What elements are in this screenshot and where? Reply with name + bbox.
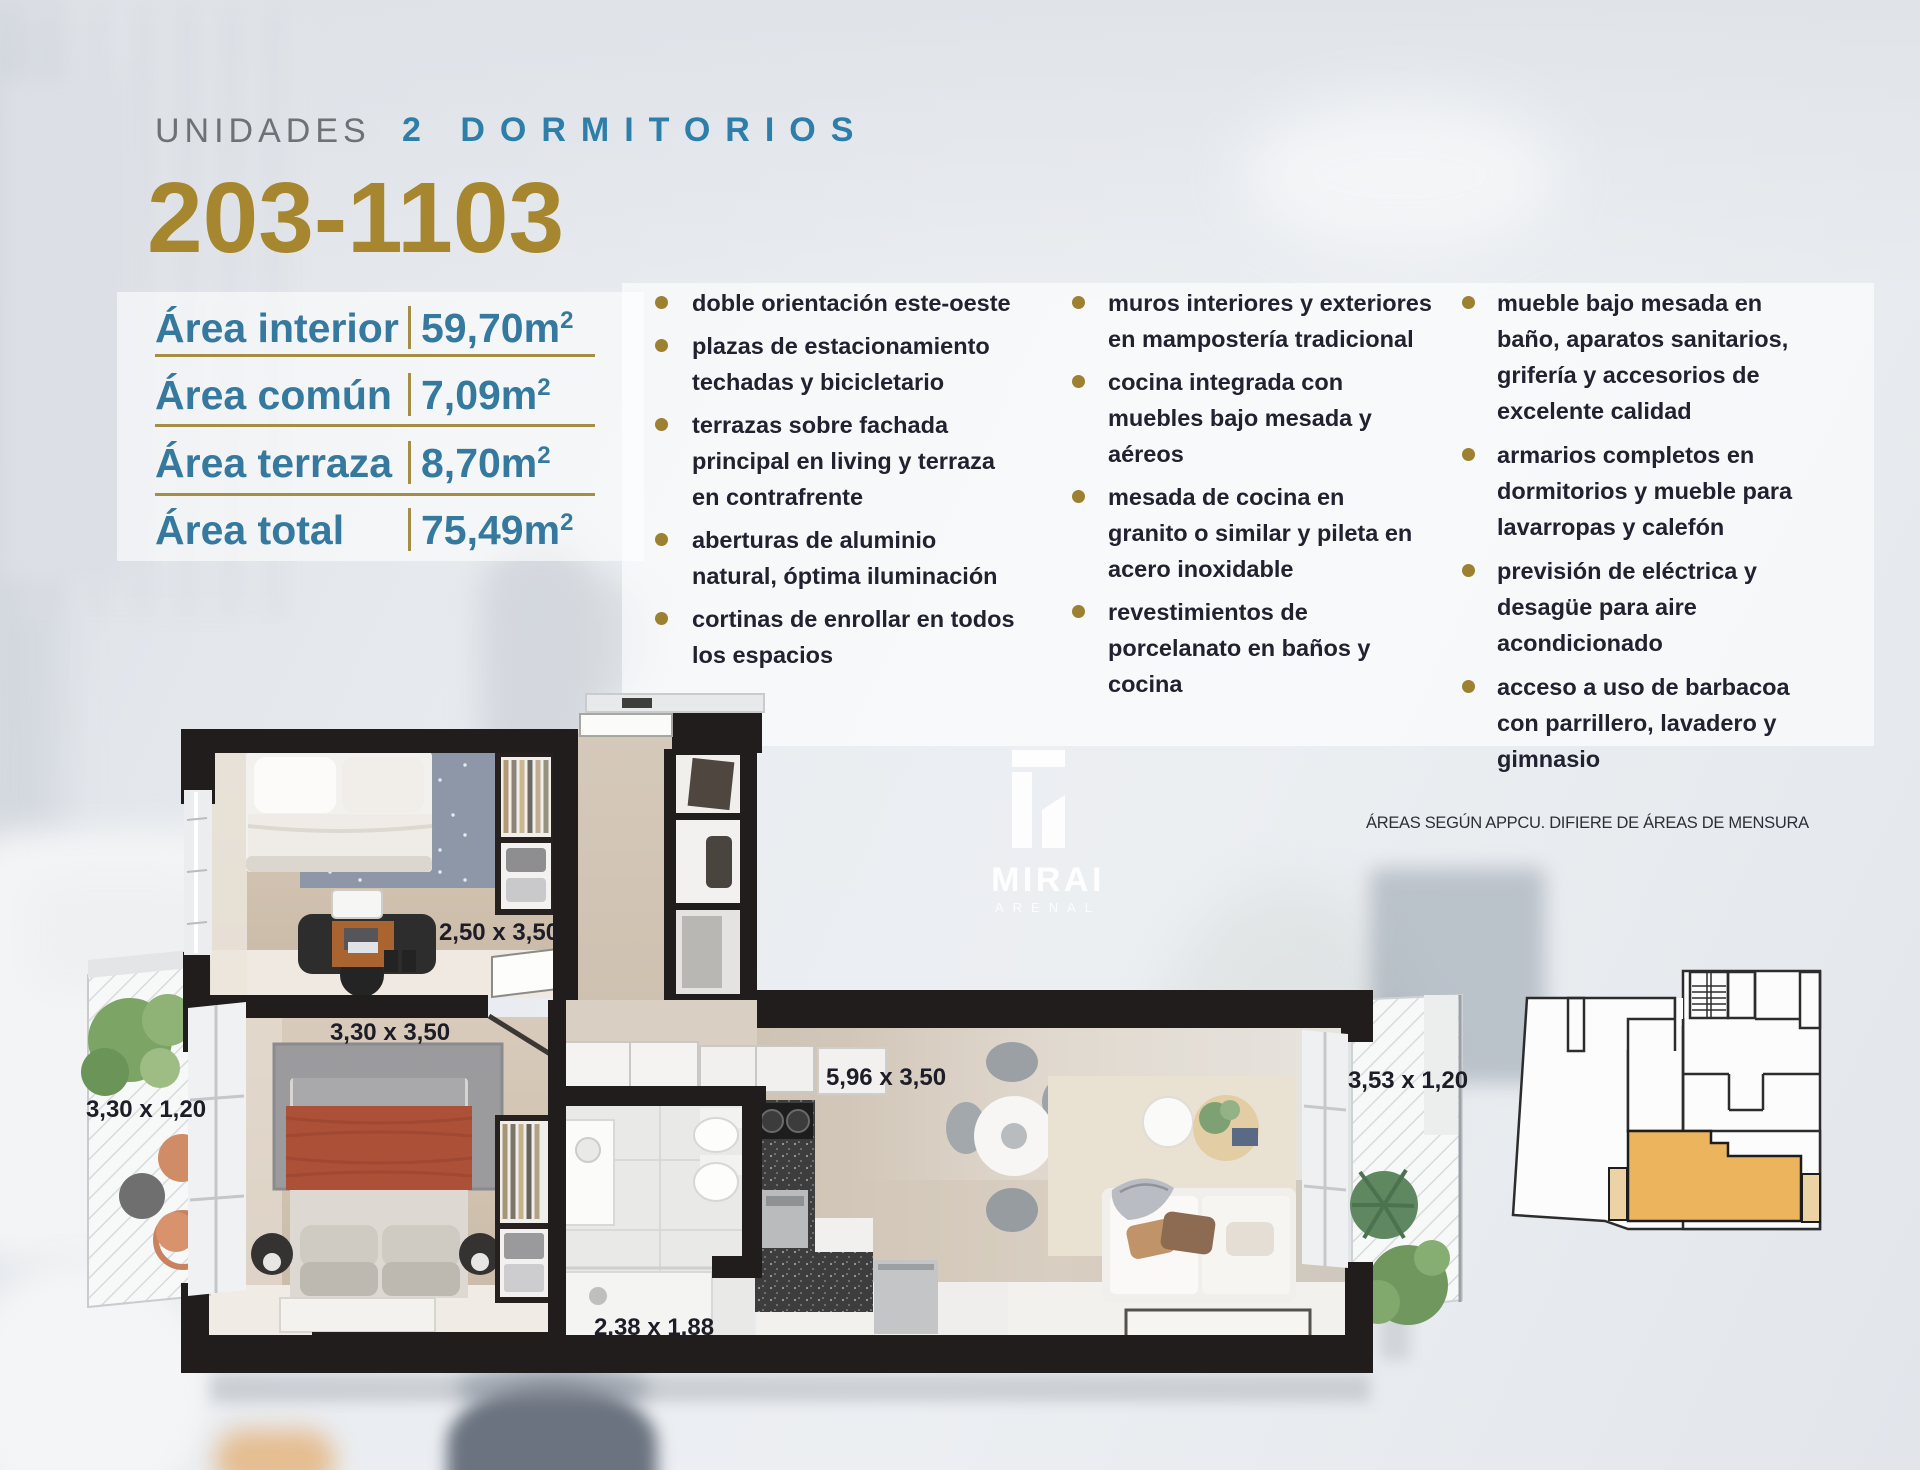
svg-text:2,50 x 3,50: 2,50 x 3,50 <box>439 919 559 946</box>
svg-text:3,30 x 1,20: 3,30 x 1,20 <box>86 1096 206 1123</box>
svg-text:3,53 x 1,20: 3,53 x 1,20 <box>1348 1067 1468 1094</box>
svg-text:MIRAI: MIRAI <box>991 861 1105 899</box>
svg-text:3,30 x 3,50: 3,30 x 3,50 <box>330 1019 450 1046</box>
svg-text:ARENAL: ARENAL <box>995 900 1101 915</box>
svg-text:2,38 x 1,88: 2,38 x 1,88 <box>594 1314 714 1341</box>
svg-text:5,96 x 3,50: 5,96 x 3,50 <box>826 1064 946 1091</box>
